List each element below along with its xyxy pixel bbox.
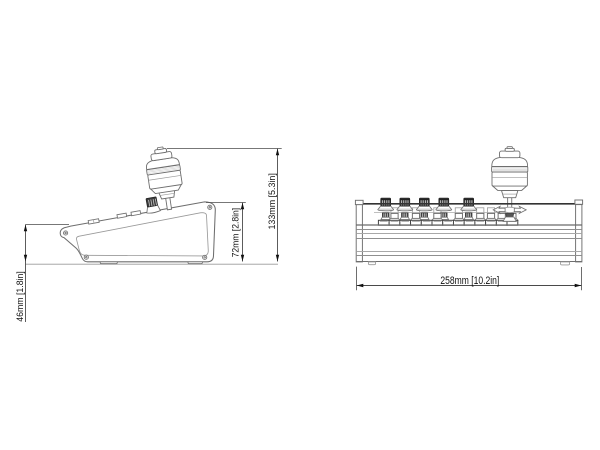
svg-text:46mm [1.8in]: 46mm [1.8in] [15,271,25,322]
svg-text:72mm [2.8in]: 72mm [2.8in] [230,208,240,258]
svg-text:133mm [5.3in]: 133mm [5.3in] [267,173,277,229]
svg-text:258mm [10.2in]: 258mm [10.2in] [440,275,499,287]
